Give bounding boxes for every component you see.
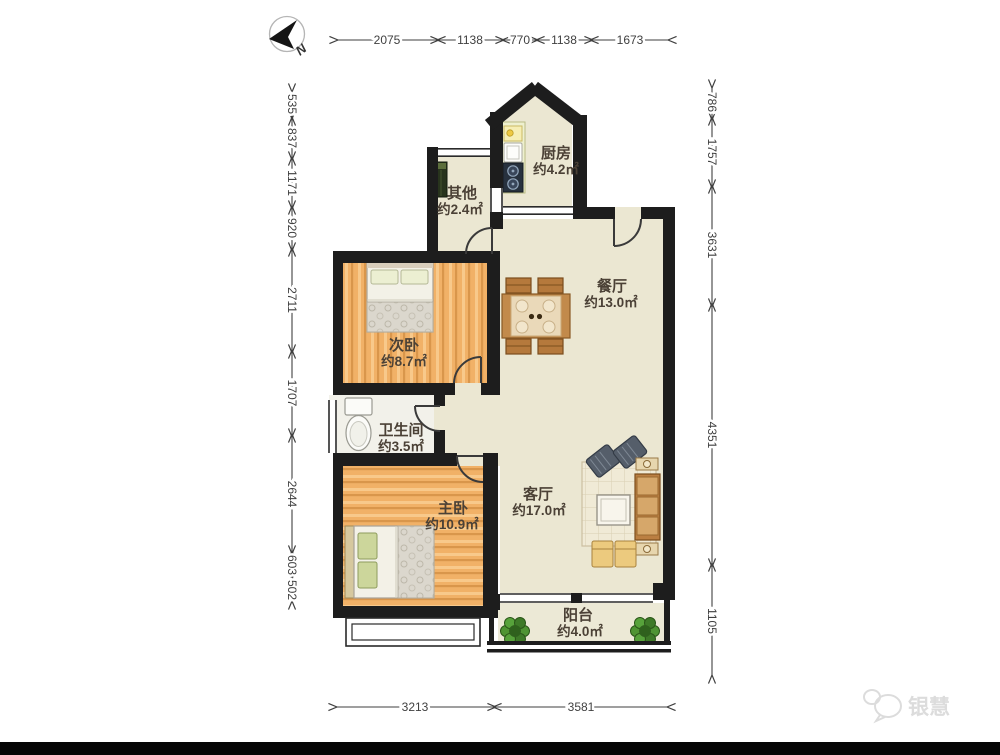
dimension-label: 1138: [457, 33, 483, 47]
floor-plan-page: 厨房 约4.2㎡ 其他 约2.4㎡ 餐厅 约13.0㎡ 次卧 约8.7㎡ 卫生间…: [0, 0, 1000, 755]
room-area-master-bedroom: 约10.9㎡: [425, 516, 479, 532]
watermark: 银慧: [864, 690, 950, 721]
room-label-living: 客厅: [522, 485, 553, 503]
dimension-label: 502: [285, 580, 299, 600]
compass-north-label: N: [293, 40, 310, 58]
room-area-bathroom: 约3.5㎡: [378, 438, 424, 454]
window: [328, 400, 337, 453]
watermark-text: 银慧: [908, 696, 950, 719]
room-area-dining: 约13.0㎡: [584, 294, 638, 310]
dimension-label: 603: [285, 555, 299, 575]
dimension-label: 535: [285, 94, 299, 114]
bay-window: [346, 618, 480, 646]
room-area-other: 约2.4㎡: [437, 201, 483, 217]
dimension-label: 1105: [705, 608, 719, 634]
compass: N: [269, 17, 310, 59]
room-label-bathroom: 卫生间: [378, 421, 423, 439]
room-label-kitchen: 厨房: [541, 144, 571, 162]
toilet-icon: [345, 398, 372, 451]
room-label-second-bedroom: 次卧: [389, 336, 419, 354]
dimension-label: 920: [285, 218, 299, 238]
dimension-label: 3631: [705, 232, 719, 259]
plant-icon: [631, 618, 660, 645]
dimension-label: 1757: [705, 139, 719, 166]
room-area-balcony: 约4.0㎡: [557, 623, 603, 639]
bottom-black-bar: [0, 742, 1000, 755]
entrance-opening: [615, 207, 641, 219]
room-label-master-bedroom: 主卧: [438, 499, 468, 517]
dimension-label: 2711: [285, 287, 299, 313]
sofa-icon: [635, 474, 660, 540]
dimension-chain-left: 535 837 1171 920 2711 1707 2644 603 502: [285, 92, 299, 601]
dimension-label: 1673: [617, 33, 644, 47]
window: [503, 206, 573, 215]
room-area-living: 约17.0㎡: [512, 502, 566, 518]
dimension-label: 2644: [285, 481, 299, 508]
bed-icon-master-bedroom: [345, 526, 434, 598]
dimension-label: 770: [510, 33, 530, 47]
window: [500, 593, 653, 603]
bed-icon-second-bedroom: [367, 263, 433, 332]
plant-icon: [501, 618, 530, 645]
floor-plan-canvas: 厨房 约4.2㎡ 其他 约2.4㎡ 餐厅 约13.0㎡ 次卧 约8.7㎡ 卫生间…: [0, 0, 1000, 755]
kitchen-counter-icon: [501, 122, 525, 193]
side-table-icon: [636, 543, 658, 555]
room-label-other: 其他: [447, 184, 477, 202]
room-area-second-bedroom: 约8.7㎡: [381, 353, 427, 369]
dimension-label: 837: [285, 128, 299, 148]
room-label-balcony: 阳台: [563, 606, 593, 624]
dimension-chain-right: 786 1757 3631 4351 1105: [705, 88, 719, 675]
dimension-label: 3213: [402, 700, 429, 714]
dimension-label: 2075: [374, 33, 401, 47]
dimension-label: 4351: [705, 422, 719, 449]
stove-icon: [503, 163, 523, 192]
window: [490, 188, 503, 212]
room-label-dining: 餐厅: [597, 277, 627, 295]
chat-bubbles-icon: [864, 690, 901, 721]
dimension-chain-top: 2075 1138 770 1138 1673: [338, 33, 668, 47]
dimension-label: 1171: [285, 170, 299, 196]
dimension-label: 1707: [285, 380, 299, 407]
side-table-icon: [636, 458, 658, 470]
dimension-label: 3581: [568, 700, 595, 714]
window: [438, 148, 490, 157]
dimension-label: 786: [705, 92, 719, 112]
room-area-kitchen: 约4.2㎡: [533, 161, 579, 177]
dimension-label: 1138: [551, 33, 577, 47]
dimension-chain-bottom: 3213 3581: [337, 700, 667, 714]
